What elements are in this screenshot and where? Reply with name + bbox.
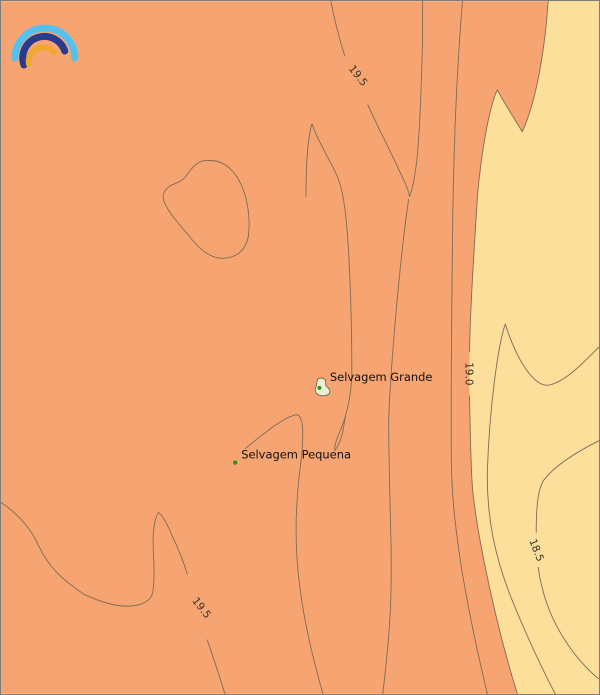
map-canvas[interactable]: Selvagem Grande Selvagem Pequena 19.5 19… <box>1 1 599 694</box>
selvagem-pequena-marker <box>233 461 237 465</box>
selvagem-grande-marker <box>318 386 321 389</box>
contour-label-19-0: 19.0 <box>462 362 474 385</box>
label-selvagem-pequena: Selvagem Pequena <box>241 448 351 462</box>
map-viewport: Selvagem Grande Selvagem Pequena 19.5 19… <box>0 0 600 695</box>
label-selvagem-grande: Selvagem Grande <box>330 370 433 384</box>
